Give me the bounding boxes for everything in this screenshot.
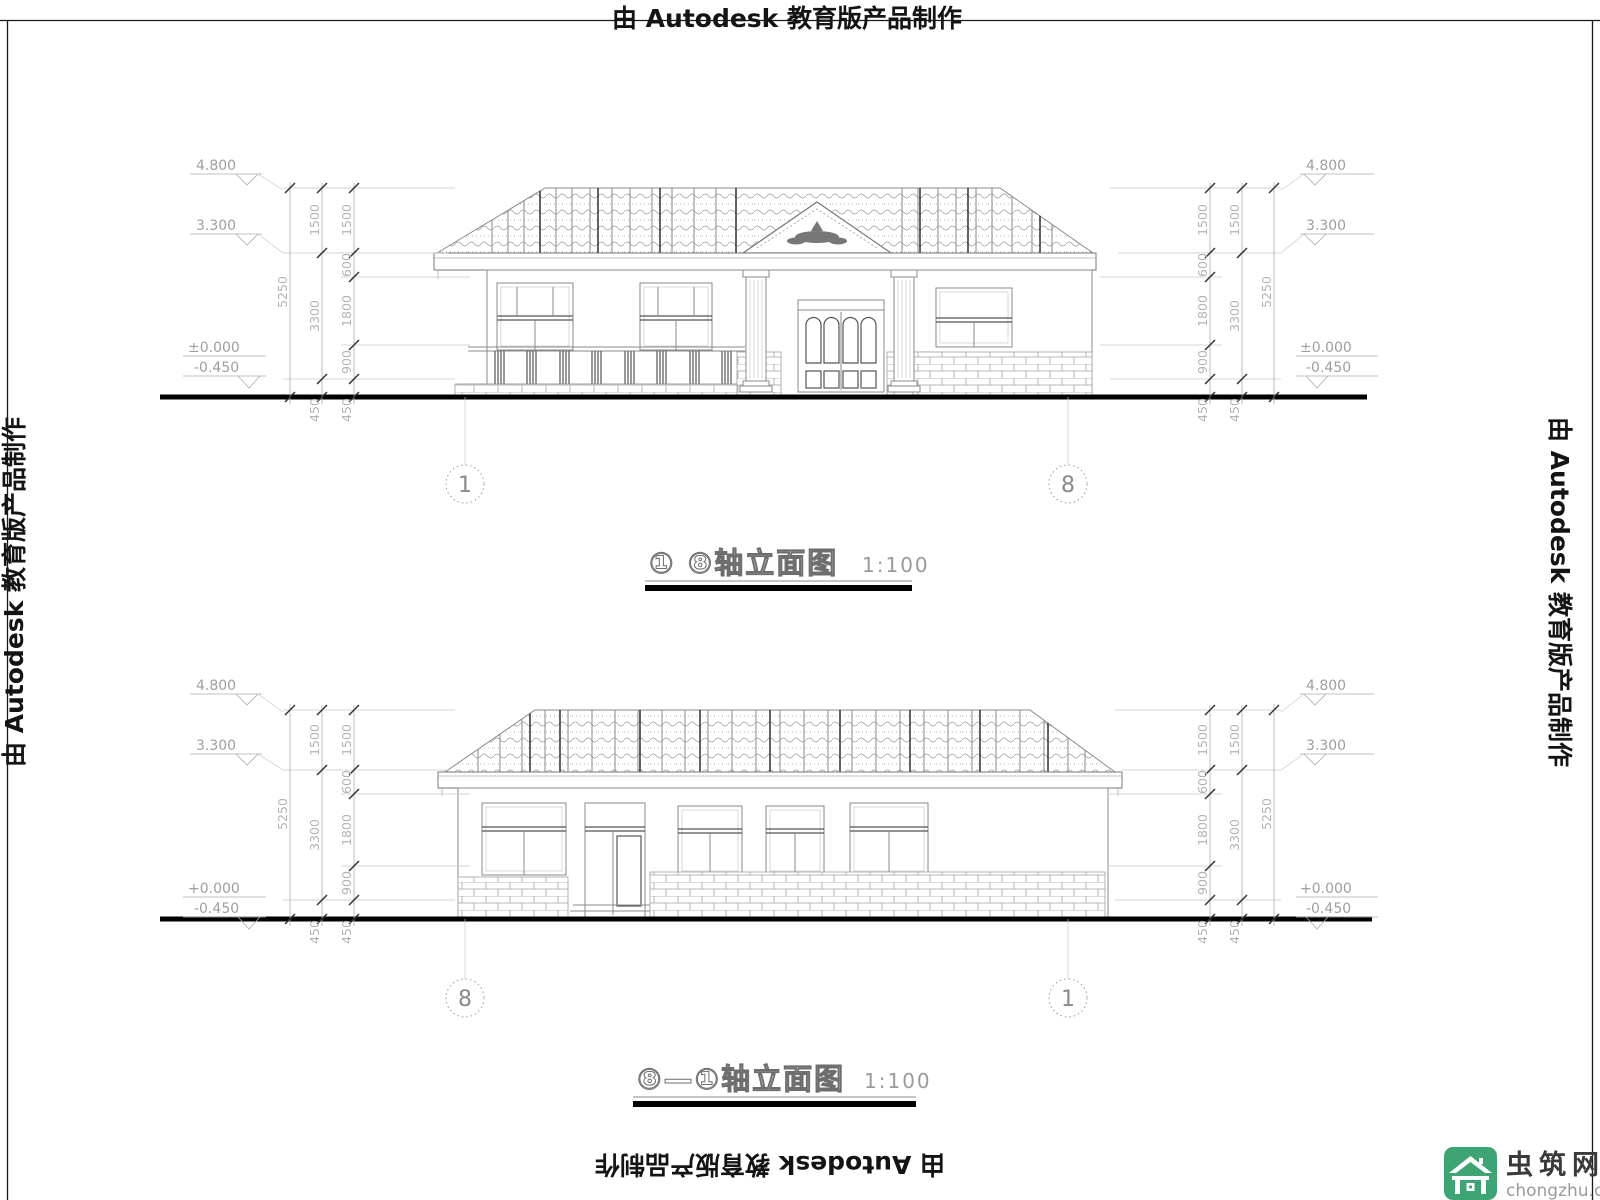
level-eave: 3.300 <box>1306 738 1346 754</box>
back-dims-right: 5250 1500 3300 450 1500 600 1800 900 450 <box>1108 704 1281 944</box>
dim-1500: 1500 <box>1195 204 1210 236</box>
level-eave: 3.300 <box>196 218 236 234</box>
front-dims-left: 5250 1500 3300 450 1500 600 1800 900 450 <box>275 182 470 422</box>
dim-450: 450 <box>1195 398 1210 422</box>
dim-5250: 5250 <box>275 276 290 308</box>
dim-1500: 1500 <box>339 204 354 236</box>
dim-3300: 3300 <box>1227 300 1242 332</box>
dim-900: 900 <box>339 871 354 895</box>
back-title: ⑧—①轴立面图 1:100 <box>633 1062 932 1104</box>
dim-5250: 5250 <box>1259 276 1274 308</box>
level-zero: +0.000 <box>1300 881 1352 897</box>
level-zero: ±0.000 <box>1300 340 1352 356</box>
dim-450: 450 <box>339 398 354 422</box>
front-window-3 <box>936 288 1012 347</box>
level-below: -0.450 <box>1306 901 1351 917</box>
front-title: ① ⑧轴立面图 1:100 <box>645 546 930 588</box>
cad-elevation-sheet: 由 Autodesk 教育版产品制作 由 Autodesk 教育版产品制作 由 … <box>0 0 1600 1200</box>
dim-1500: 1500 <box>307 724 322 756</box>
entrance-door <box>798 300 884 392</box>
level-eave: 3.300 <box>1306 218 1346 234</box>
dim-3300: 3300 <box>307 819 322 851</box>
dim-1500: 1500 <box>1227 724 1242 756</box>
level-ridge: 4.800 <box>1306 158 1346 174</box>
front-title-scale: 1:100 <box>862 553 930 577</box>
level-ridge: 4.800 <box>1306 678 1346 694</box>
back-window-2 <box>678 806 742 875</box>
back-title-scale: 1:100 <box>864 1069 932 1093</box>
axis-number: 1 <box>1061 987 1075 1012</box>
front-window-1 <box>497 283 573 350</box>
back-masonry-base <box>458 872 1105 919</box>
dim-600: 600 <box>1195 770 1210 794</box>
level-ridge: 4.800 <box>196 678 236 694</box>
dim-1800: 1800 <box>1195 814 1210 846</box>
dim-600: 600 <box>339 770 354 794</box>
dim-450: 450 <box>1195 920 1210 944</box>
axis-number: 8 <box>458 987 472 1012</box>
dim-1500: 1500 <box>307 204 322 236</box>
autodesk-watermark-top: 由 Autodesk 教育版产品制作 <box>612 4 962 33</box>
axis-number: 1 <box>458 473 472 498</box>
level-below: -0.450 <box>1306 360 1351 376</box>
dim-600: 600 <box>339 253 354 277</box>
front-dims-right: 5250 1500 3300 450 1500 600 1800 900 450 <box>1100 182 1281 422</box>
logo-tile <box>1444 1147 1497 1200</box>
front-window-2 <box>640 283 712 350</box>
dim-450: 450 <box>1227 398 1242 422</box>
dim-1800: 1800 <box>339 814 354 846</box>
dim-1500: 1500 <box>339 724 354 756</box>
dim-1800: 1800 <box>1195 295 1210 327</box>
dim-5250: 5250 <box>275 798 290 830</box>
sheet-border: 由 Autodesk 教育版产品制作 由 Autodesk 教育版产品制作 由 … <box>0 4 1600 1200</box>
dim-5250: 5250 <box>1259 798 1274 830</box>
front-elevation: 1 8 5250 1500 3300 450 1500 600 1800 900… <box>160 158 1378 588</box>
back-window-4 <box>850 803 928 875</box>
back-axis-markers: 8 1 <box>446 919 1087 1017</box>
dim-450: 450 <box>307 398 322 422</box>
autodesk-watermark-right: 由 Autodesk 教育版产品制作 <box>1545 417 1574 767</box>
front-title-label: ① ⑧轴立面图 <box>649 546 838 580</box>
back-elevation: 8 1 5250 1500 3300 450 1500 600 1800 900… <box>160 678 1378 1104</box>
front-levels-left: 4.800 3.300 ±0.000 -0.450 <box>183 158 283 388</box>
back-title-label: ⑧—①轴立面图 <box>637 1062 845 1096</box>
dim-450: 450 <box>1227 920 1242 944</box>
level-zero: +0.000 <box>188 881 240 897</box>
level-below: -0.450 <box>194 901 239 917</box>
dim-900: 900 <box>1195 350 1210 374</box>
dim-3300: 3300 <box>307 300 322 332</box>
front-axis-markers: 1 8 <box>446 397 1087 503</box>
dim-600: 600 <box>1195 253 1210 277</box>
front-levels-right: 4.800 3.300 ±0.000 -0.450 <box>1281 158 1378 388</box>
autodesk-watermark-left: 由 Autodesk 教育版产品制作 <box>0 417 29 767</box>
level-eave: 3.300 <box>196 738 236 754</box>
dim-3300: 3300 <box>1227 819 1242 851</box>
back-levels-left: 4.800 3.300 +0.000 -0.450 <box>183 678 283 929</box>
level-below: -0.450 <box>194 360 239 376</box>
axis-number: 8 <box>1061 473 1075 498</box>
level-ridge: 4.800 <box>196 158 236 174</box>
level-zero: ±0.000 <box>188 340 240 356</box>
dim-900: 900 <box>339 350 354 374</box>
dim-900: 900 <box>1195 871 1210 895</box>
chongzhu-logo: 虫筑网 chongzhu.cn <box>1444 1147 1600 1200</box>
back-window-3 <box>766 806 824 875</box>
back-window-1 <box>482 803 566 875</box>
dim-1500: 1500 <box>1227 204 1242 236</box>
logo-site-domain: chongzhu.cn <box>1506 1181 1600 1200</box>
back-levels-right: 4.800 3.300 +0.000 -0.450 <box>1281 678 1378 929</box>
dim-1800: 1800 <box>339 295 354 327</box>
logo-site-name: 虫筑网 <box>1506 1149 1600 1181</box>
dim-450: 450 <box>307 920 322 944</box>
autodesk-watermark-bottom: 由 Autodesk 教育版产品制作 <box>595 1150 945 1179</box>
back-dims-left: 5250 1500 3300 450 1500 600 1800 900 450 <box>275 704 470 944</box>
dim-1500: 1500 <box>1195 724 1210 756</box>
dim-450: 450 <box>339 920 354 944</box>
